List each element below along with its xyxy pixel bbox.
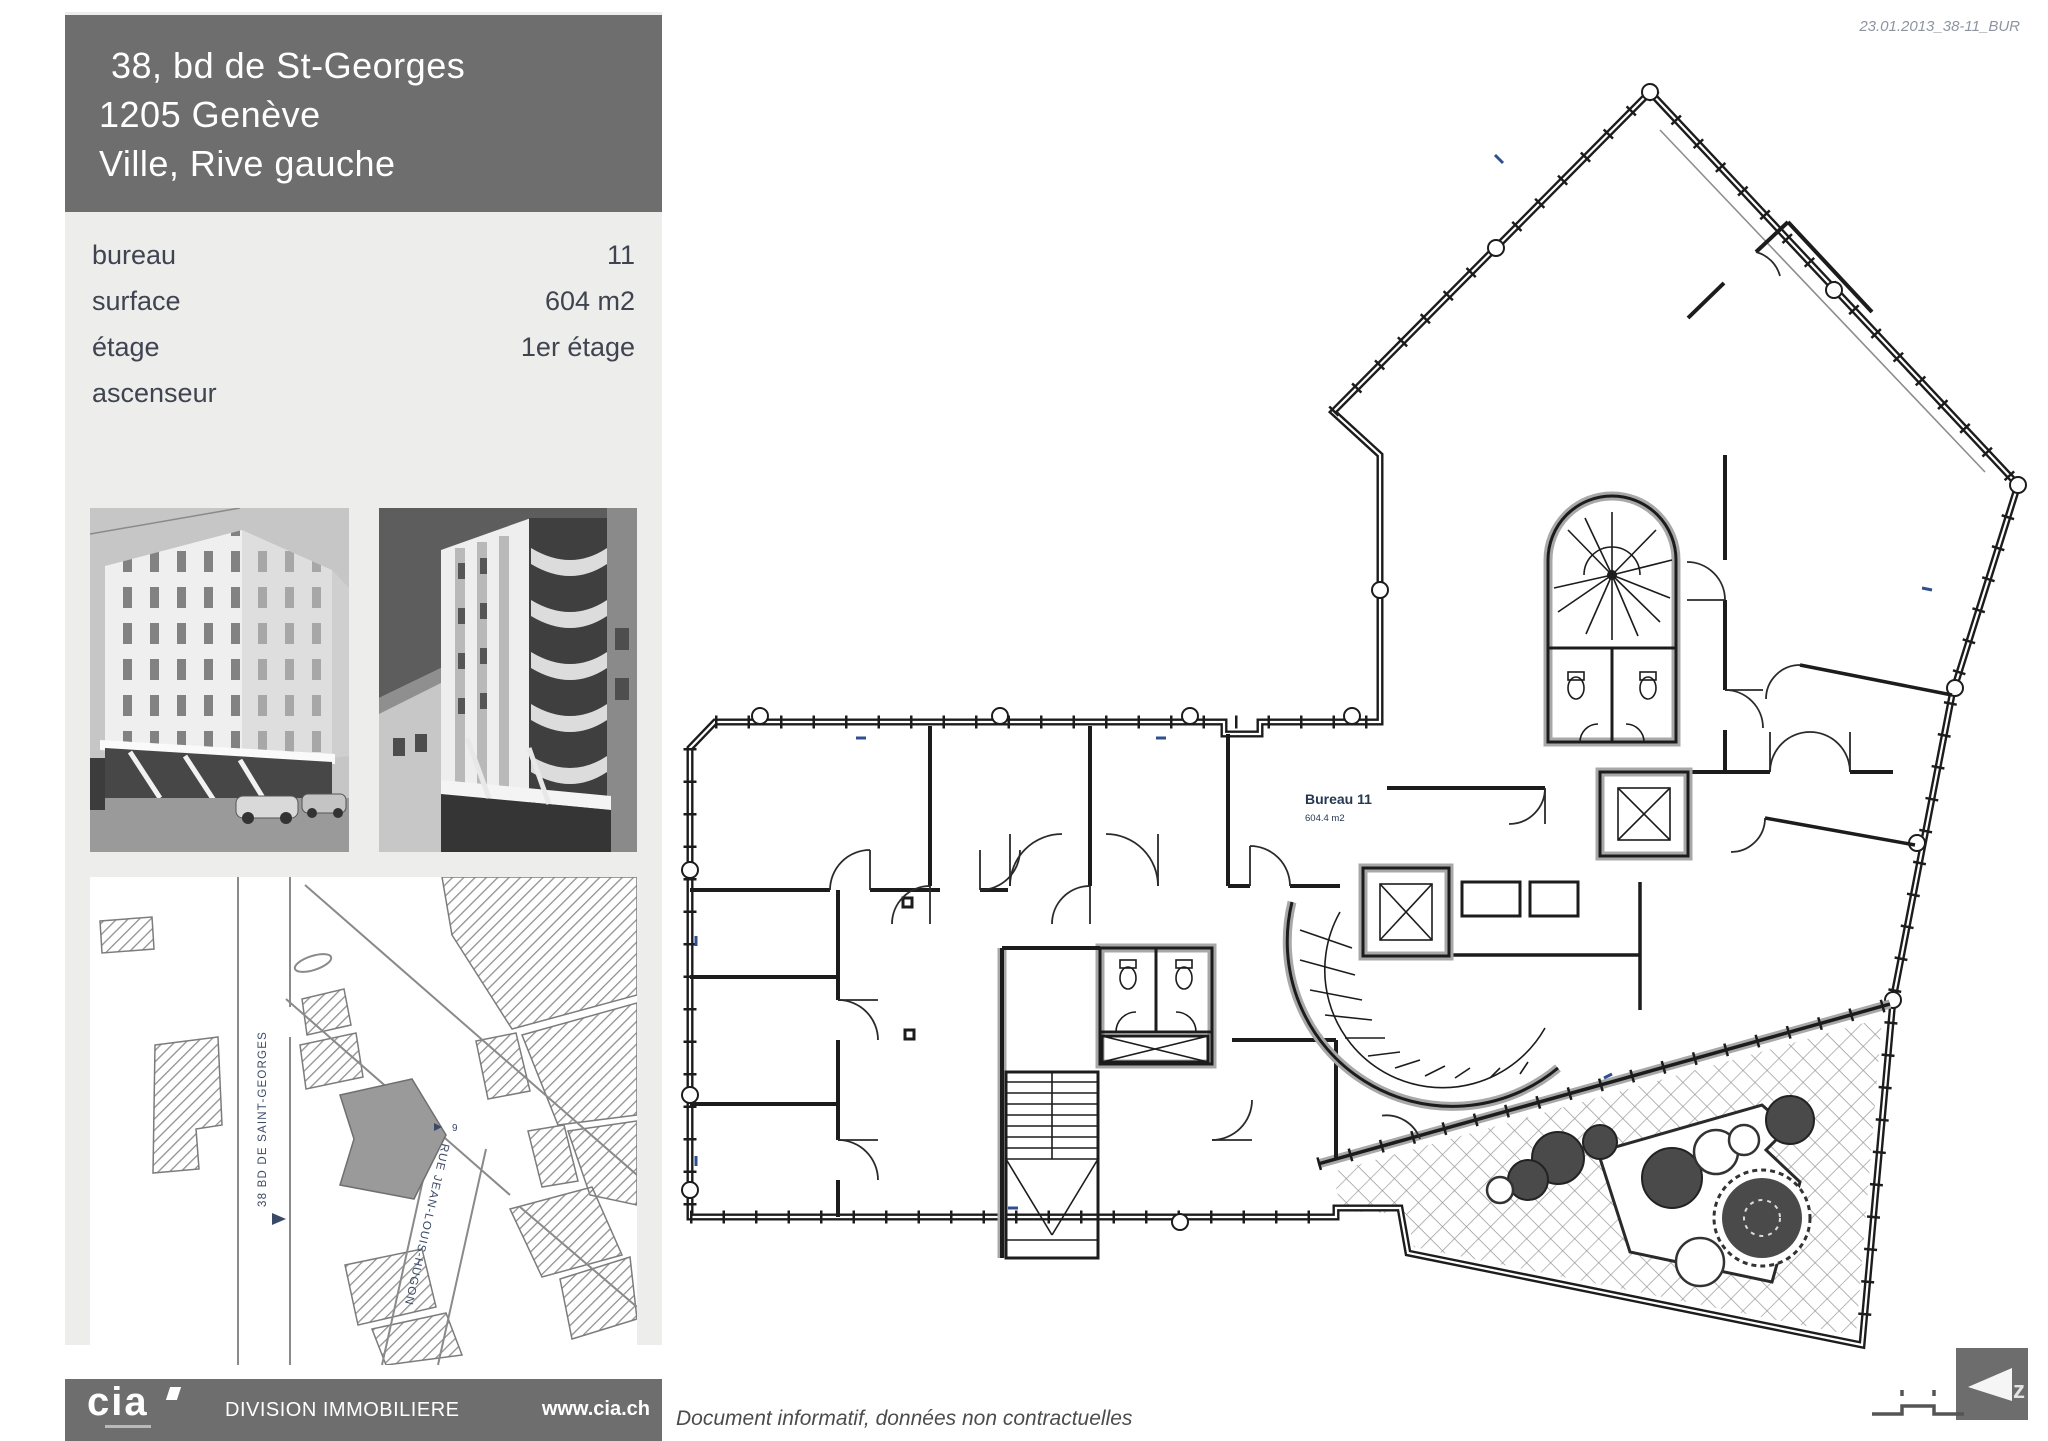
floor-plan: Bureau 11 604.4 m2 z bbox=[680, 60, 2048, 1441]
room-area-label: 604.4 m2 bbox=[1305, 813, 1345, 824]
cia-logo-tagline bbox=[105, 1425, 151, 1428]
disclaimer-text: Document informatif, données non contrac… bbox=[676, 1407, 1132, 1431]
building-photo-2 bbox=[379, 508, 637, 852]
north-arrow-icon: z bbox=[1956, 1348, 2028, 1420]
room-label: Bureau 11 bbox=[1305, 791, 1372, 807]
detail-row-ascenseur: ascenseur bbox=[92, 370, 635, 416]
document-reference: 23.01.2013_38-11_BUR bbox=[1859, 18, 2020, 35]
website-text: www.cia.ch bbox=[542, 1398, 650, 1421]
scale-bar bbox=[1872, 1390, 1964, 1414]
detail-value: 1er étage bbox=[521, 324, 635, 370]
map-street-label-st-georges: 38 BD DE SAINT-GEORGES bbox=[257, 1031, 269, 1207]
location-map: 38 BD DE SAINT-GEORGES RUE JEAN-LOUIS-HU… bbox=[90, 877, 637, 1365]
address-line-1: 38, bd de St-Georges bbox=[99, 41, 662, 90]
north-letter: z bbox=[2013, 1377, 2025, 1404]
property-details: bureau 11 surface 604 m2 étage 1er étage… bbox=[92, 232, 635, 416]
address-line-3: Ville, Rive gauche bbox=[99, 139, 662, 188]
cia-logo-mark bbox=[166, 1387, 181, 1400]
detail-row-etage: étage 1er étage bbox=[92, 324, 635, 370]
address-line-2: 1205 Genève bbox=[99, 90, 662, 139]
detail-value: 11 bbox=[607, 232, 635, 278]
document-page: 23.01.2013_38-11_BUR 38, bd de St-George… bbox=[0, 0, 2048, 1441]
map-block bbox=[100, 917, 154, 953]
detail-row-bureau: bureau 11 bbox=[92, 232, 635, 278]
footer-bar: cia DIVISION IMMOBILIERE www.cia.ch bbox=[65, 1379, 662, 1441]
detail-value: 604 m2 bbox=[545, 278, 635, 324]
detail-label: bureau bbox=[92, 232, 176, 278]
detail-row-surface: surface 604 m2 bbox=[92, 278, 635, 324]
detail-label: ascenseur bbox=[92, 370, 217, 416]
detail-label: étage bbox=[92, 324, 160, 370]
cia-logo: cia bbox=[87, 1380, 149, 1425]
building-photo-1 bbox=[90, 508, 349, 852]
map-house-number: 9 bbox=[452, 1123, 458, 1134]
address-header: 38, bd de St-Georges 1205 Genève Ville, … bbox=[65, 15, 662, 212]
division-label: DIVISION IMMOBILIERE bbox=[225, 1399, 459, 1422]
detail-label: surface bbox=[92, 278, 181, 324]
